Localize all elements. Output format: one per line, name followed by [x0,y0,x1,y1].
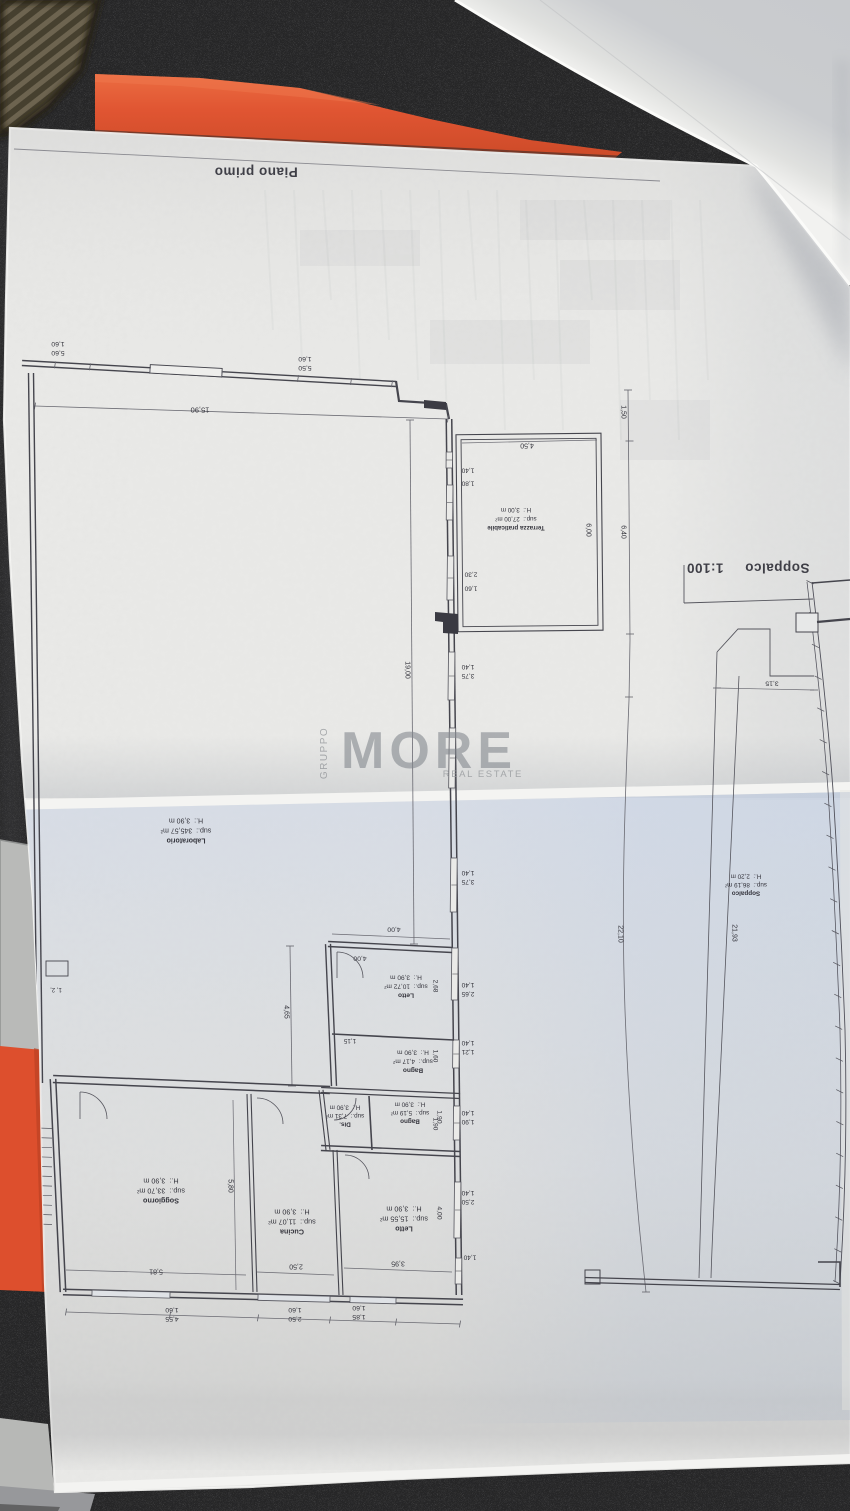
svg-text:21,93: 21,93 [731,924,738,942]
svg-text:4,00: 4,00 [436,1206,443,1219]
svg-text:3,95: 3,95 [391,1260,405,1267]
svg-text:1,60: 1,60 [432,1050,439,1063]
svg-text:H.: 3,90 m: H.: 3,90 m [386,1205,421,1214]
svg-text:sup.: 10,72 m²: sup.: 10,72 m² [383,983,427,990]
svg-text:1,40: 1,40 [461,663,474,670]
svg-text:H.: 3,90 m: H.: 3,90 m [169,817,203,824]
svg-text:5,80: 5,80 [227,1179,234,1193]
svg-text:H.: 3,90 m: H.: 3,90 m [143,1177,178,1186]
svg-text:1,40: 1,40 [461,981,474,988]
svg-text:1,40: 1,40 [461,1039,474,1046]
svg-text:19,00: 19,00 [404,661,411,679]
svg-text:sup.: 15,55 m²: sup.: 15,55 m² [379,1215,428,1224]
svg-text:Bagno: Bagno [400,1117,420,1124]
svg-text:1,60: 1,60 [352,1304,365,1311]
svg-text:3,15: 3,15 [765,680,778,687]
svg-text:5,60: 5,60 [51,349,64,356]
svg-text:1,60: 1,60 [51,340,64,347]
svg-text:1,85: 1,85 [352,1313,365,1320]
svg-text:1,60: 1,60 [464,585,477,592]
svg-text:H.: 3,90 m: H.: 3,90 m [395,1100,426,1107]
svg-text:1,60: 1,60 [165,1306,178,1313]
svg-text:Soggiorno: Soggiorno [142,1197,179,1206]
svg-text:H.: 3,00 m: H.: 3,00 m [501,506,531,513]
svg-text:Piano primo: Piano primo [214,164,298,179]
svg-text:5,50: 5,50 [298,364,311,371]
svg-text:1,40: 1,40 [461,1109,474,1116]
svg-text:22,10: 22,10 [617,925,624,943]
svg-text:H.: 3,90 m: H.: 3,90 m [390,974,422,981]
svg-text:Terrazza praticabile: Terrazza praticabile [487,524,545,531]
svg-text:REAL ESTATE: REAL ESTATE [443,769,523,780]
svg-text:4,65: 4,65 [283,1005,290,1019]
svg-text:1,40: 1,40 [461,467,474,474]
svg-text:1,60: 1,60 [288,1306,301,1313]
svg-text:sup.: 11,07 m²: sup.: 11,07 m² [268,1218,316,1227]
svg-text:4,00: 4,00 [387,926,400,933]
svg-text:Dis.: Dis. [339,1120,351,1127]
svg-text:Laboratorio: Laboratorio [167,837,206,844]
svg-text:sup.: 27,00 m²: sup.: 27,00 m² [495,515,536,522]
svg-text:sup.: 7,31 m²: sup.: 7,31 m² [326,1112,365,1119]
svg-text:Letto: Letto [395,1225,413,1234]
svg-text:H.: 3,90 m: H.: 3,90 m [330,1103,361,1110]
svg-text:3,75: 3,75 [461,672,474,679]
svg-text:1,15: 1,15 [343,1037,356,1044]
svg-text:H.: 2,20 m: H.: 2,20 m [731,872,762,879]
svg-text:2,50: 2,50 [288,1315,301,1322]
svg-text:4,50: 4,50 [520,442,534,449]
svg-text:15,90: 15,90 [191,405,210,414]
svg-text:Letto: Letto [398,992,414,999]
svg-text:1,40: 1,40 [461,1189,474,1196]
svg-text:H.: 3,90 m: H.: 3,90 m [274,1208,309,1217]
svg-text:Soppalco: Soppalco [732,889,760,896]
svg-text:2,50: 2,50 [461,1198,474,1205]
svg-text:Soppalco 1:100: Soppalco 1:100 [686,560,809,575]
svg-text:sup.: 86,19 m²: sup.: 86,19 m² [725,881,767,888]
svg-text:4,55: 4,55 [165,1315,178,1322]
svg-text:1,80: 1,80 [461,480,474,487]
svg-text:1,40: 1,40 [461,869,474,876]
svg-text:1, 2,: 1, 2, [50,986,62,992]
svg-text:2,30: 2,30 [464,571,477,578]
svg-text:3,75: 3,75 [461,878,474,885]
svg-text:GRUPPO: GRUPPO [319,727,330,779]
svg-text:1,21: 1,21 [461,1048,474,1055]
svg-text:1,60: 1,60 [298,355,311,362]
svg-text:sup.: 4,17 m²: sup.: 4,17 m² [392,1058,433,1065]
svg-text:1,90: 1,90 [432,1118,439,1131]
svg-text:6,40: 6,40 [620,525,627,539]
svg-text:1,40: 1,40 [463,1254,476,1261]
svg-text:sup.: 33,70 m²: sup.: 33,70 m² [136,1187,185,1196]
svg-text:Bagno: Bagno [403,1067,423,1074]
svg-text:6,00: 6,00 [585,523,592,537]
svg-text:2,50: 2,50 [289,1263,303,1270]
svg-text:H.: 3,90 m: H.: 3,90 m [397,1049,429,1056]
svg-text:4,00: 4,00 [353,955,366,962]
svg-text:Cucina: Cucina [279,1228,304,1237]
svg-text:1,90: 1,90 [461,1118,474,1125]
svg-text:sup.: 5,19 m²: sup.: 5,19 m² [391,1109,430,1116]
svg-text:sup.: 345,57 m²: sup.: 345,57 m² [160,827,211,834]
svg-text:5,81: 5,81 [149,1268,163,1275]
svg-text:2,68: 2,68 [432,980,439,993]
svg-text:2,65: 2,65 [461,990,474,997]
